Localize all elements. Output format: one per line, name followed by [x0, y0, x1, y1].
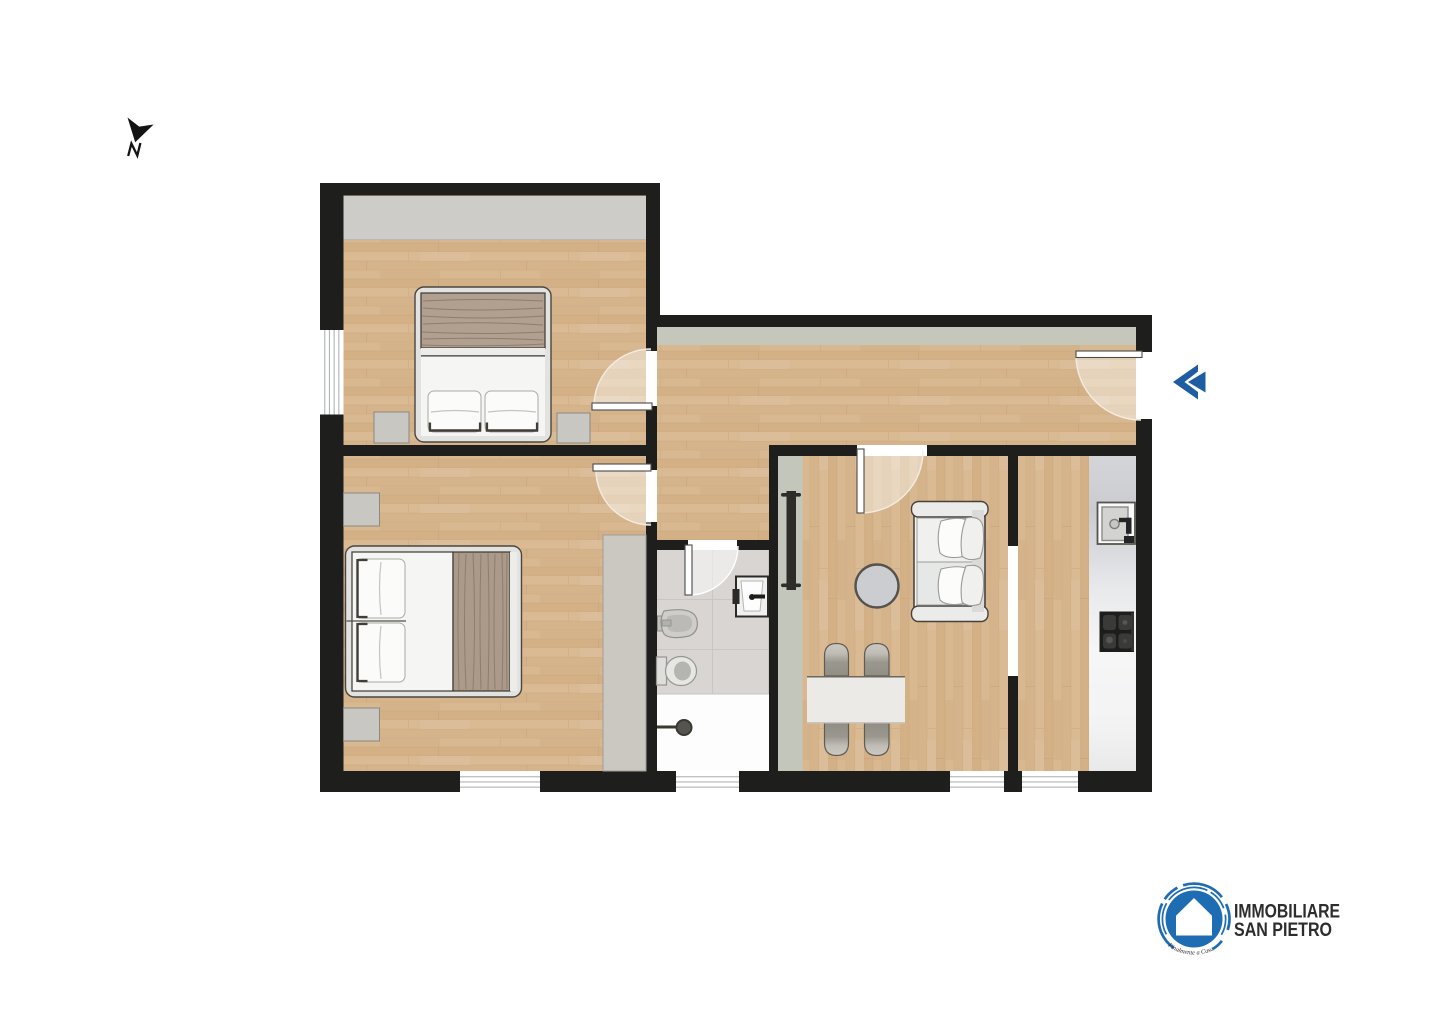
svg-text:SAN PIETRO: SAN PIETRO	[1234, 919, 1332, 941]
